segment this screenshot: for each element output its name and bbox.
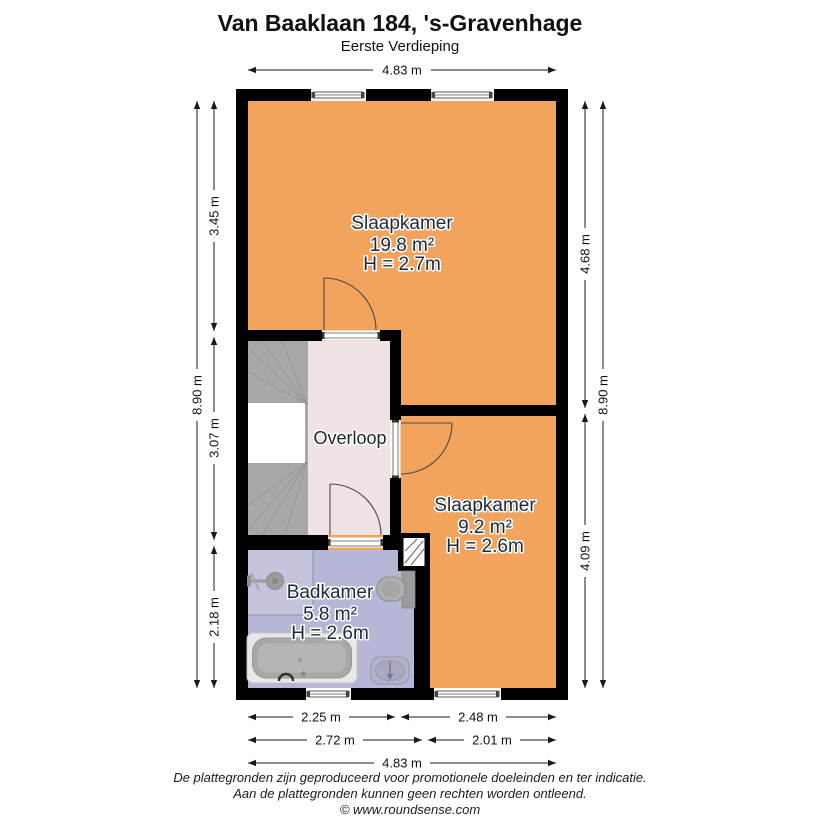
window-top-left: [311, 89, 366, 101]
dim-left-segment-2-label: 3.07 m: [207, 418, 222, 458]
dim-left-segment-1-label: 3.45 m: [207, 196, 222, 236]
dim-bottom-row2-left: 2.72 m: [248, 733, 422, 748]
header: Van Baaklaan 184, 's-Gravenhage Eerste V…: [218, 10, 583, 55]
staircase: [248, 341, 308, 535]
dim-bottom-row1-left: 2.25 m: [248, 710, 395, 725]
dim-bottom-row2-left-label: 2.72 m: [315, 733, 355, 748]
sink: [371, 657, 409, 684]
slaapkamer-1-height: H = 2.7m: [363, 254, 441, 275]
dim-bottom-row1-left-label: 2.25 m: [301, 710, 341, 725]
wall-overloop-slaapkamer1-left: [236, 330, 322, 341]
dim-left-segment-3-label: 2.18 m: [207, 597, 222, 637]
dim-bottom-row2-right-label: 2.01 m: [472, 733, 512, 748]
footer-copyright: © www.roundsense.com: [340, 802, 481, 817]
floorplan-page: Van Baaklaan 184, 's-Gravenhage Eerste V…: [0, 0, 825, 825]
dim-top-width-label: 4.83 m: [382, 63, 422, 78]
floor-plan: Slaapkamer 19.8 m² H = 2.7m Overloop Sla…: [236, 89, 568, 700]
slaapkamer-2-area: 9.2 m²: [458, 517, 512, 538]
slaapkamer-2-height: H = 2.6m: [446, 536, 524, 557]
slaapkamer-1-area: 19.8 m²: [370, 235, 434, 256]
slaapkamer-1-name: Slaapkamer: [351, 213, 453, 234]
dim-left-total: 8.90 m: [190, 101, 205, 688]
dim-left-segment-3: 2.18 m: [207, 546, 222, 688]
wall-badkamer-top-left: [236, 535, 328, 550]
footer: De plattegronden zijn geproduceerd voor …: [173, 770, 646, 817]
window-bottom-left: [306, 688, 351, 700]
dim-right-segment-1: 4.68 m: [578, 101, 593, 408]
dim-bottom-row1-right-label: 2.48 m: [458, 710, 498, 725]
wall-overloop-vertical-upper: [390, 330, 401, 420]
dim-left-total-label: 8.90 m: [190, 375, 205, 415]
wall-slaapkamer1-slaapkamer2: [401, 405, 568, 416]
page-subtitle: Eerste Verdieping: [341, 38, 459, 55]
dim-left-segment-1: 3.45 m: [207, 101, 222, 331]
page-title: Van Baaklaan 184, 's-Gravenhage: [218, 10, 583, 36]
badkamer-name: Badkamer: [287, 582, 374, 603]
dim-right-segment-2: 4.09 m: [578, 414, 593, 688]
dim-left-segment-2: 3.07 m: [207, 337, 222, 540]
overloop-name: Overloop: [313, 428, 386, 448]
dim-bottom-row2-right: 2.01 m: [428, 733, 556, 748]
dim-bottom-row1-right: 2.48 m: [401, 710, 556, 725]
window-top-right: [431, 89, 494, 101]
badkamer-area: 5.8 m²: [303, 604, 357, 625]
door-sill-badkamer: [328, 538, 383, 548]
door-sill-slaapkamer-1: [322, 331, 380, 341]
dim-right-segment-2-label: 4.09 m: [578, 531, 593, 571]
slaapkamer-2-name: Slaapkamer: [434, 495, 536, 516]
dim-right-total: 8.90 m: [596, 101, 611, 688]
floorplan-svg: Van Baaklaan 184, 's-Gravenhage Eerste V…: [0, 0, 825, 825]
dim-right-total-label: 8.90 m: [596, 375, 611, 415]
footer-disclaimer-line2: Aan de plattegronden kunnen geen rechten…: [232, 786, 586, 801]
dim-bottom-total-label: 4.83 m: [382, 756, 422, 771]
dim-right-segment-1-label: 4.68 m: [578, 234, 593, 274]
footer-disclaimer-line1: De plattegronden zijn geproduceerd voor …: [173, 770, 646, 785]
window-bottom-right: [434, 688, 501, 700]
door-sill-slaapkamer-2: [391, 420, 401, 478]
dim-bottom-total: 4.83 m: [248, 756, 556, 771]
badkamer-height: H = 2.6m: [291, 623, 369, 644]
dim-top-width: 4.83 m: [248, 63, 556, 78]
shaft: [398, 533, 430, 571]
stairwell-void: [248, 403, 305, 463]
